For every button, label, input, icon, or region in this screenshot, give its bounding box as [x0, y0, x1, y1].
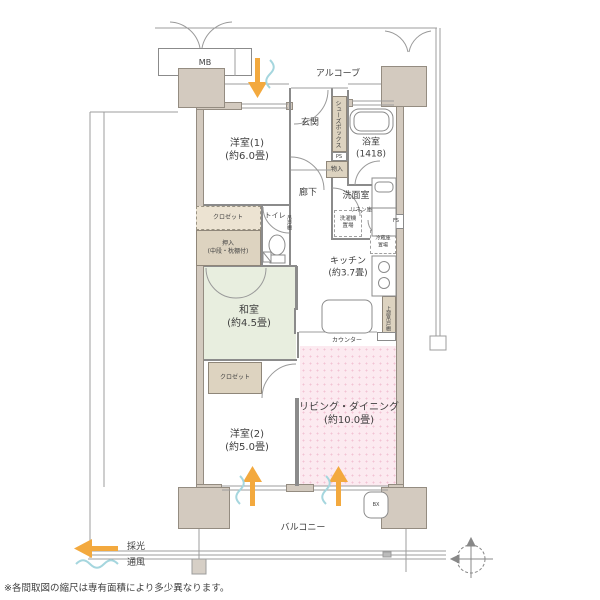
toilet-icon	[269, 235, 285, 255]
wall-toilet-top	[261, 204, 291, 206]
wall-senmen-bottom	[331, 238, 371, 240]
kitchen-label: キッチン (約3.7畳)	[328, 256, 367, 279]
compass-icon	[451, 538, 493, 578]
monoire-label: 物入	[331, 166, 343, 174]
vanity-icon	[372, 178, 396, 208]
footnote: ※各間取図の縮尺は専有面積により多少異なります。	[4, 583, 229, 595]
senmen-label: 洗面室	[342, 191, 369, 203]
laundry-label: 洗濯機 置場	[340, 216, 357, 230]
alcove-label: アルコーブ	[316, 69, 360, 81]
bath-label: 浴室 (1418)	[356, 137, 386, 160]
sliding-door-leaf-1	[294, 308, 296, 334]
shoes-box-label: シューズボックス	[334, 99, 340, 149]
wall-washitsu-right-upper	[295, 266, 298, 310]
pillar-bottom-right	[381, 487, 427, 529]
floor-plan: MB アルコーブ 洋室(1) (約6.0畳) 玄関 シューズボックス PS 浴室…	[0, 0, 600, 600]
wall-senmen-left	[331, 176, 333, 240]
ps-label: PS	[336, 154, 342, 161]
daylight-legend-label: 採光	[127, 542, 145, 554]
sliding-door-leaf-2	[297, 332, 299, 358]
bx-label: BX	[373, 502, 380, 509]
kitchen-sink-icon	[322, 300, 372, 333]
pillar-bottom-left	[178, 487, 230, 529]
wall-toilet-left	[261, 205, 263, 266]
plan-linework	[0, 0, 600, 600]
counter-label: カウンター	[332, 337, 362, 345]
wall-bath-bottom	[347, 184, 397, 186]
closet1-label: クロゼット	[213, 214, 243, 222]
pillar-top-right	[381, 66, 427, 107]
toilet-label: トイレ	[265, 211, 286, 220]
wall-washitsu-bottom	[204, 359, 297, 361]
washitsu-label: 和室 (約4.5畳)	[227, 304, 271, 330]
closet2-label: クロゼット	[220, 374, 250, 382]
yoshitsu2-label: 洋室(2) (約5.0畳)	[225, 428, 269, 454]
genkan-label: 玄関	[301, 118, 319, 130]
wall-bottom-2	[286, 484, 314, 492]
fridge-label: 冷蔵庫 置場	[375, 236, 390, 249]
oshiire-label: 押入 (中段・枕棚付)	[208, 240, 249, 256]
tsuridana-label: 吊戸棚	[286, 209, 291, 235]
stove-icon	[372, 256, 396, 296]
upper-cabinet-label: 上部吊戸棚	[385, 299, 390, 337]
living-dining-label: リビング・ダイニング (約10.0畳)	[299, 401, 399, 427]
wall-left	[196, 102, 204, 490]
rouka-label: 廊下	[299, 188, 317, 200]
pillar-top-left	[178, 68, 225, 108]
bathtub-icon	[350, 109, 393, 134]
mb-label: MB	[199, 58, 211, 68]
balcony-label: バルコニー	[281, 523, 326, 535]
linen-label: リネン庫	[350, 207, 372, 214]
ventilation-legend-label: 通風	[127, 558, 145, 570]
fs-label: FS	[393, 218, 399, 225]
wall-genkan-left	[289, 88, 291, 205]
wall-right	[396, 99, 404, 490]
yoshitsu1-label: 洋室(1) (約6.0畳)	[225, 137, 269, 163]
